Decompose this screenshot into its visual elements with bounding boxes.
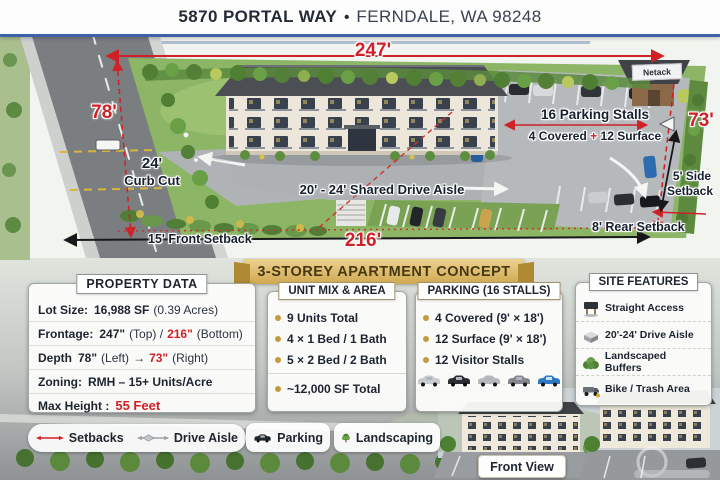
bullet-separator: • [344,9,349,26]
front-view-label: Front View [478,455,566,478]
lot-size-note: (0.39 Acres) [153,303,218,317]
depth-row: Depth 78" (Left) → 73" (Right) [29,345,255,369]
lot-size-label: Lot Size: [38,303,88,317]
address-text: 5870 PORTAL WAY [178,7,337,27]
title-banner: 5870 PORTAL WAY • FERNDALE, WA 98248 [0,0,720,37]
site-feature-label: Straight Access [605,302,684,314]
unit-mix-title: UNIT MIX & AREA [278,282,395,300]
frontage-top-value: 247" [99,327,125,341]
list-item: Landscaped Buffers [576,348,711,375]
list-item: 20'-24' Drive Aisle [576,321,711,348]
curb-cut-label: Curb Cut [112,173,192,188]
parking-panel: PARKING (16 STALLS) 4 Covered (9' × 18')… [415,291,563,412]
bullet-icon [423,357,429,363]
frontage-bottom-value: 216" [167,327,193,341]
site-feature-label: Landscaped Buffers [605,350,705,374]
dimension-label-top: 247' [340,40,406,62]
frontage-top-note: (Top) / [129,327,163,341]
unit-mix-total: ~12,000 SF Total [287,382,381,396]
depth-label: Depth [38,351,72,365]
unit-mix-item: 5 × 2 Bed / 2 Bath [287,353,387,367]
frontage-row: Frontage: 247" (Top) / 216" (Bottom) [29,321,255,345]
legend-label: Landscaping [356,431,433,445]
bullet-icon [423,336,429,342]
frontage-label: Frontage: [38,327,93,341]
unit-mix-item: 4 × 1 Bed / 1 Bath [287,332,387,346]
plus-sign: + [590,129,597,143]
bullet-icon [423,315,429,321]
depth-left-note: (Left) [101,351,129,365]
frontage-bottom-note: (Bottom) [197,327,243,341]
lot-size-row: Lot Size: 16,988 SF (0.39 Acres) [29,298,255,321]
side-setback-label-1: 5' Side [664,169,720,183]
bullet-icon [275,357,281,363]
list-item: 12 Surface (9' × 18') [416,328,562,349]
legend-landscaping-box: Landscaping [334,423,440,452]
surface-count: 12 Surface [601,129,662,143]
property-data-title: PROPERTY DATA [76,274,207,294]
truck-icon [582,381,600,398]
concept-title: 3-STOREY APARTMENT CONCEPT [257,264,510,280]
legend-label: Parking [277,431,323,445]
unit-mix-panel: UNIT MIX & AREA 9 Units Total 4 × 1 Bed … [267,291,407,412]
property-data-panel: PROPERTY DATA Lot Size: 16,988 SF (0.39 … [28,283,256,413]
max-height-label: Max Height : [38,399,109,413]
parking-title: PARKING (16 STALLS) [418,282,561,300]
dimension-label-bottom: 216' [330,230,396,252]
car-icon [506,374,532,387]
max-height-row: Max Height : 55 Feet [29,393,255,417]
depth-right-value: 73" [149,351,168,365]
covered-count: 4 Covered [529,129,587,143]
site-feature-label: 20'-24' Drive Aisle [605,329,694,341]
list-item: Straight Access [576,295,711,321]
car-icon [416,374,442,387]
side-setback-label-2: Setback [660,184,720,198]
flyer-page: 5870 PORTAL WAY • FERNDALE, WA 98248 247… [0,0,720,480]
legend-label: Drive Aisle [174,431,238,445]
site-features-title: SITE FEATURES [589,273,699,291]
setback-line-icon [36,433,64,443]
zoning-label: Zoning: [38,375,82,389]
list-item: 9 Units Total [268,307,406,328]
city-text: FERNDALE, WA 98248 [356,7,541,27]
dimension-label-left: 78' [78,102,130,124]
planter-icon [582,327,600,344]
list-item: Bike / Trash Area [576,375,711,402]
car-thumbnails [416,374,562,387]
front-setback-label: 15' Front Setback [148,232,252,246]
depth-arrow: → [133,351,145,365]
curb-cut-value: 24' [128,155,176,172]
dimension-label-right: 73' [682,110,720,132]
car-icon [446,374,472,387]
parking-breakdown-label: 4 Covered + 12 Surface [508,129,682,143]
car-icon [536,374,562,387]
billboard-icon [582,300,600,317]
car-icon [253,432,272,444]
zoning-value: RMH – 15+ Units/Acre [88,375,212,389]
unit-mix-item: 9 Units Total [287,311,358,325]
unit-mix-total-row: ~12,000 SF Total [268,373,406,399]
bullet-icon [275,315,281,321]
list-item: 5 × 2 Bed / 2 Bath [268,349,406,370]
parking-item: 12 Visitor Stalls [435,353,524,367]
parking-item: 12 Surface (9' × 18') [435,332,546,346]
bullet-icon [275,336,281,342]
list-item: 12 Visitor Stalls [416,349,562,370]
depth-right-note: (Right) [172,351,208,365]
shared-drive-aisle-label: 20' - 24' Shared Drive Aisle [262,182,502,197]
hut-sign: Netack [632,63,683,81]
legend-bar: Setbacks Drive Aisle [28,424,246,452]
car-icon [476,374,502,387]
apartment-building [212,66,512,166]
list-item: 4 Covered (9' × 18') [416,307,562,328]
lot-size-value: 16,988 SF [94,303,149,317]
max-height-value: 55 Feet [115,398,160,413]
legend-label: Setbacks [69,431,124,445]
depth-left-value: 78" [78,351,97,365]
shrub-icon [582,354,600,371]
legend-parking-box: Parking [246,423,330,452]
site-features-panel: SITE FEATURES Straight Access 20'-24' Dr… [575,282,712,406]
concept-ribbon: 3-STOREY APARTMENT CONCEPT [244,259,524,284]
list-item: 4 × 1 Bed / 1 Bath [268,328,406,349]
bullet-icon [275,386,281,392]
tree-icon [341,430,351,446]
rear-setback-label: 8' Rear Setback [592,220,685,234]
parking-stalls-label: 16 Parking Stalls [518,107,672,122]
drive-aisle-arrow-icon [137,432,169,444]
zoning-row: Zoning: RMH – 15+ Units/Acre [29,369,255,393]
site-feature-label: Bike / Trash Area [605,383,690,395]
parking-item: 4 Covered (9' × 18') [435,311,544,325]
